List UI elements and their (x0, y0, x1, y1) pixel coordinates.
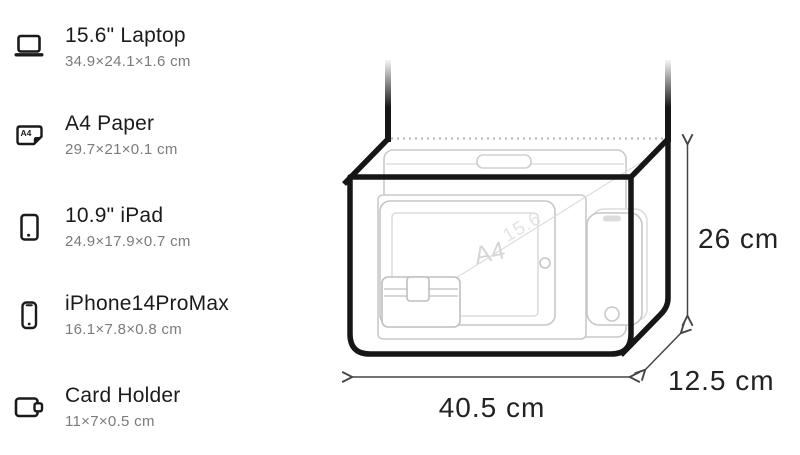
bag-top-right-edge (631, 139, 668, 177)
ghost-card-holder-clasp (407, 277, 429, 301)
bag-diagram: 15.6 A4 (0, 0, 800, 455)
depth-dimension-label: 12.5 cm (668, 365, 775, 396)
height-dimension-label: 26 cm (698, 223, 779, 254)
width-dimension-label: 40.5 cm (439, 392, 546, 423)
bag-capacity-infographic: 15.6" Laptop 34.9×24.1×1.6 cm A4 A4 Pape… (0, 0, 800, 455)
ghost-card-holder-group (382, 277, 460, 327)
ghost-iphone-group (587, 209, 647, 325)
ghost-iphone-notch (603, 216, 621, 222)
ghost-laptop-handle (477, 155, 531, 168)
